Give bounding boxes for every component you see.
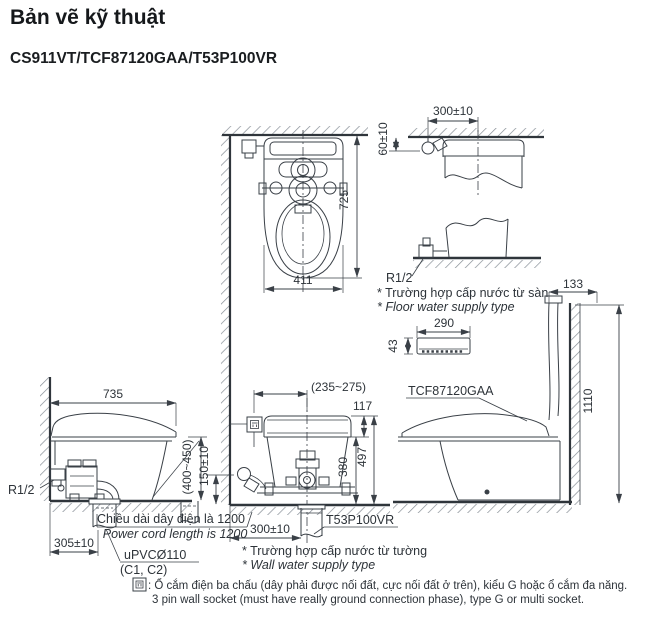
dim-remote-thickness: 43	[386, 339, 400, 353]
dim-top-to-rim: 117	[353, 399, 372, 413]
technical-drawing-page: Bản vẽ kỹ thuật CS911VT/TCF87120GAA/T53P…	[0, 0, 658, 633]
floor-hatch	[393, 504, 572, 513]
wall-hatch-left	[221, 135, 230, 505]
floor-hatch	[50, 503, 192, 512]
label-thread-wall: R1/2	[8, 483, 34, 497]
supply-riser	[549, 303, 550, 420]
dim-drain-offset: 305±10	[54, 536, 94, 550]
toilet-lid	[51, 413, 176, 436]
dim-plan-width: 411	[293, 273, 312, 287]
wall-hatch-top	[222, 126, 368, 135]
toilet-body	[152, 441, 167, 500]
dim-tank-height: 497	[355, 447, 369, 467]
wall-hatch-right	[571, 303, 580, 505]
supply-valve	[422, 142, 434, 154]
dim-remote-width: 290	[434, 316, 454, 330]
break-line	[446, 218, 508, 228]
label-drain-pipe: uPVCØ110	[124, 548, 186, 562]
footnote-en: 3 pin wall socket (must have really grou…	[152, 594, 584, 606]
floor-supply-plan-fragment: 300±10 60±10	[376, 104, 544, 196]
caption-floor-supply-en: * Floor water supply type	[377, 300, 515, 314]
footnote-vi: : Ổ cắm điện ba chấu (dây phải được nối …	[148, 579, 627, 592]
caption-wall-supply-en: * Wall water supply type	[242, 558, 375, 572]
wall-inlet-fitting	[50, 469, 65, 480]
label-fitting: T53P100VR	[326, 513, 394, 527]
dim-total-height: 1110	[581, 388, 595, 413]
toilet-lid	[402, 414, 549, 436]
footnote: : Ổ cắm điện ba chấu (dây phải được nối …	[133, 578, 627, 606]
dim-floor-supply-offset: 300±10	[433, 104, 473, 118]
plan-supply-box	[242, 140, 256, 153]
wall-hatch-left	[40, 377, 50, 501]
valve-unit	[66, 466, 97, 498]
side-view-left-drawing: 735 R1/2 (400~45	[8, 377, 252, 577]
label-seat-unit: TCF87120GAA	[408, 384, 494, 398]
dim-wall-top-offset: 133	[563, 277, 583, 291]
caption-wall-supply-vi: * Trường hợp cấp nước từ tường	[242, 544, 427, 558]
caption-floor-supply-vi: * Trường hợp cấp nước từ sàn	[377, 286, 548, 300]
remote-control-drawing: 290 43	[386, 316, 470, 354]
dim-rim-height: 380	[336, 457, 350, 477]
callout-cord-en: Power cord length is 1200	[103, 527, 248, 541]
dim-inlet-height-range: (400~450)	[180, 439, 194, 494]
label-drain-pipe-sub: (C1, C2)	[120, 563, 167, 577]
callout-cord-vi: Chiều dài dây điện là 1200	[97, 512, 245, 526]
floor-supply-valve	[419, 245, 433, 258]
dim-inlet-height: 150±10	[197, 446, 211, 486]
floor-hatch	[413, 260, 541, 268]
socket-symbol-icon	[133, 578, 146, 591]
floor-supply-front-fragment: R1/2 * Trường hợp cấp nước từ sàn * Floo…	[377, 218, 548, 314]
break-line	[445, 173, 522, 188]
label-thread-floor: R1/2	[386, 271, 412, 285]
dim-rear-drain-offset: 300±10	[250, 522, 290, 536]
tank-top	[264, 416, 351, 437]
dim-side-depth: 735	[103, 387, 123, 401]
toilet-body	[440, 441, 458, 500]
dim-plan-depth: 725	[337, 190, 351, 210]
rear-view-drawing: (235~275) 117 380 497 150±10 T53P100VR	[197, 380, 427, 572]
power-socket-symbol	[247, 417, 262, 432]
dim-floor-supply-drop: 60±10	[376, 122, 390, 156]
dim-socket-offset: (235~275)	[311, 380, 366, 394]
wall-hatch	[408, 128, 544, 137]
technical-drawing-canvas: 725 411 300±10 60±10	[0, 0, 658, 633]
